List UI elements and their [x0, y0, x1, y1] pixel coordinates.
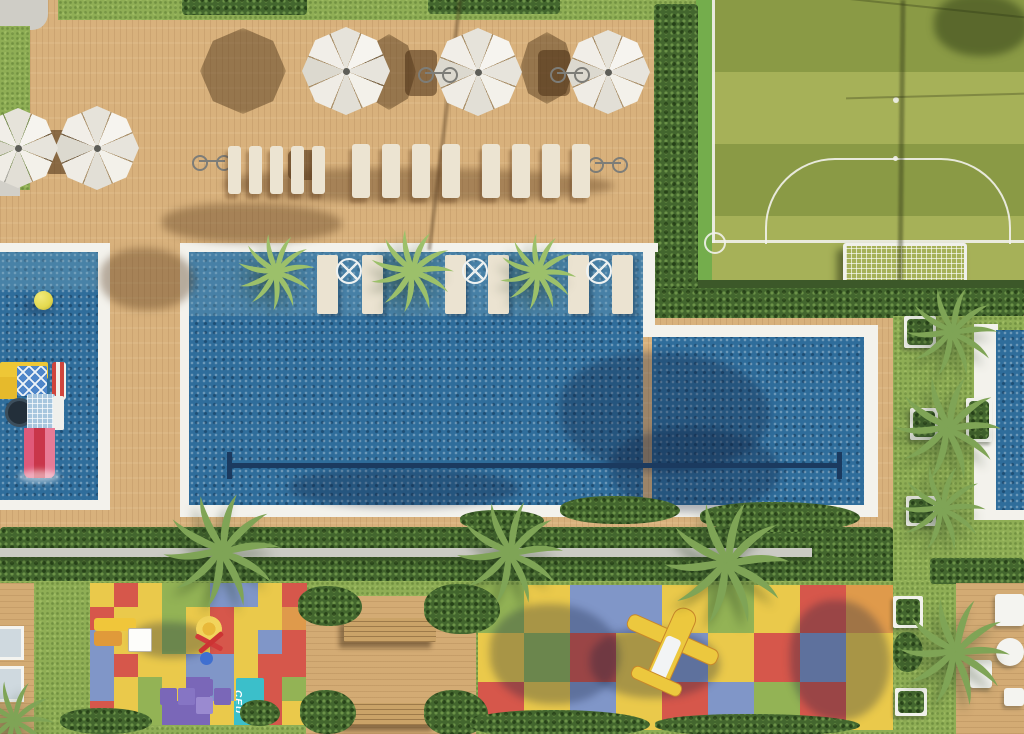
mat-square — [114, 654, 139, 678]
sun-lounger — [382, 144, 400, 198]
mat-square — [114, 677, 139, 701]
in-pool-lounger — [612, 255, 633, 314]
palm-tree — [897, 594, 1013, 710]
mat2-palm-shadow-2 — [790, 600, 890, 720]
main-pool-border-wing-top — [643, 325, 878, 337]
mat-square — [90, 677, 115, 701]
mat-square — [234, 630, 259, 654]
patio-bench-top — [344, 618, 436, 642]
deck-palm-shadow-1 — [100, 248, 195, 310]
hedge-column — [654, 4, 698, 292]
lane-line-tick-right — [837, 452, 842, 479]
mat-square — [282, 654, 307, 678]
bike-wheel — [418, 67, 434, 83]
sun-lounger — [442, 144, 460, 198]
top-bush-2 — [428, 0, 560, 14]
bike-wheel — [192, 155, 208, 171]
mat-square — [114, 583, 139, 607]
field-sideline — [712, 0, 715, 243]
kids-pool-shelf — [0, 252, 98, 290]
fern-leaves — [214, 210, 337, 333]
mat-square — [258, 654, 283, 678]
mat-square — [282, 630, 307, 654]
mat-square — [138, 583, 163, 607]
playset-net-platform — [27, 394, 55, 429]
pool-playset — [0, 360, 72, 480]
aerial-resort-rendering: CEU — [0, 0, 1024, 734]
fern-plant — [492, 226, 584, 318]
main-pool-border-right — [864, 325, 878, 517]
mat-square — [90, 583, 115, 607]
bush-clump — [300, 690, 356, 734]
penalty-box-line — [765, 158, 1011, 244]
bicycle-icon — [588, 152, 628, 174]
palm-canopy — [432, 475, 589, 632]
bike-frame — [557, 72, 583, 74]
sun-lounger — [572, 144, 590, 198]
palm-canopy — [160, 489, 284, 613]
sun-lounger — [542, 144, 560, 198]
mat-square — [90, 654, 115, 678]
spinner-toy — [192, 608, 236, 670]
hopscotch-cell — [196, 679, 213, 696]
palm-tree — [661, 497, 793, 629]
bush-clump — [470, 710, 650, 734]
mat-square — [258, 630, 283, 654]
bush-clump — [60, 708, 152, 734]
sun-lounger — [312, 146, 325, 194]
arc-spot — [893, 156, 898, 161]
soccer-field — [696, 0, 1024, 292]
sun-lounger — [270, 146, 283, 194]
top-bush-1 — [182, 0, 307, 15]
palm-shadow-field — [934, 0, 1024, 56]
lane-line — [230, 463, 840, 468]
hopscotch-cell — [214, 688, 231, 705]
bush-clump — [240, 700, 280, 726]
hopscotch-cell — [196, 697, 213, 714]
palm-canopy — [892, 458, 992, 558]
hopscotch — [158, 676, 236, 718]
kids-pool-border-bottom — [0, 500, 110, 510]
palm-canopy — [645, 481, 808, 644]
palm-canopy — [0, 671, 63, 734]
lane-line-tick-left — [227, 452, 232, 479]
bike-frame — [425, 72, 451, 74]
tractor-cab — [94, 631, 122, 646]
hopscotch-cell — [160, 688, 177, 705]
sun-lounger — [291, 146, 304, 194]
bush-clump — [655, 714, 860, 734]
mat-square — [282, 677, 307, 701]
slide-splash — [18, 470, 60, 483]
pool-ball — [34, 291, 53, 310]
mat-square — [234, 654, 259, 678]
grass-top-strip — [58, 0, 698, 20]
bike-wheel — [612, 157, 628, 173]
corner-arc — [704, 232, 726, 254]
palm-tree — [896, 462, 988, 554]
patio-umbrella — [302, 27, 390, 115]
hopscotch-cell — [178, 688, 195, 705]
palm-tree — [160, 489, 284, 613]
sun-lounger — [228, 146, 241, 194]
bike-wheel — [442, 67, 458, 83]
bush-clump — [298, 586, 362, 626]
bike-frame — [595, 162, 621, 164]
sun-lounger — [482, 144, 500, 198]
playset-white-rail — [53, 396, 64, 430]
bicycle-icon — [418, 62, 458, 84]
playset-blue-panel — [17, 366, 47, 396]
bicycle-icon — [550, 62, 590, 84]
sun-lounger — [352, 144, 370, 198]
sun-lounger — [412, 144, 430, 198]
kids-pool-border-top — [0, 243, 110, 252]
palm-tree — [0, 678, 56, 734]
spinner-seat — [200, 652, 213, 665]
fern-leaves — [345, 204, 479, 338]
net-shadow-line-1 — [846, 93, 1024, 100]
tractor-toy — [92, 614, 152, 652]
sun-lounger — [512, 144, 530, 198]
fern-plant — [362, 221, 462, 321]
fern-leaves — [485, 219, 592, 326]
pool-umbrella-socket — [586, 258, 612, 284]
main-pool-border-step — [643, 243, 655, 337]
bike-wheel — [588, 157, 604, 173]
fern-plant — [230, 226, 322, 318]
playset-yellow-side — [0, 377, 17, 399]
sun-lounger — [249, 146, 262, 194]
bike-wheel — [550, 67, 566, 83]
bike-wheel — [574, 67, 590, 83]
palm-tree — [454, 497, 566, 609]
bicycle-icon — [192, 150, 232, 172]
cabana-daybed-1 — [0, 626, 24, 660]
bike-frame — [199, 160, 225, 162]
tractor-panel — [128, 628, 152, 652]
